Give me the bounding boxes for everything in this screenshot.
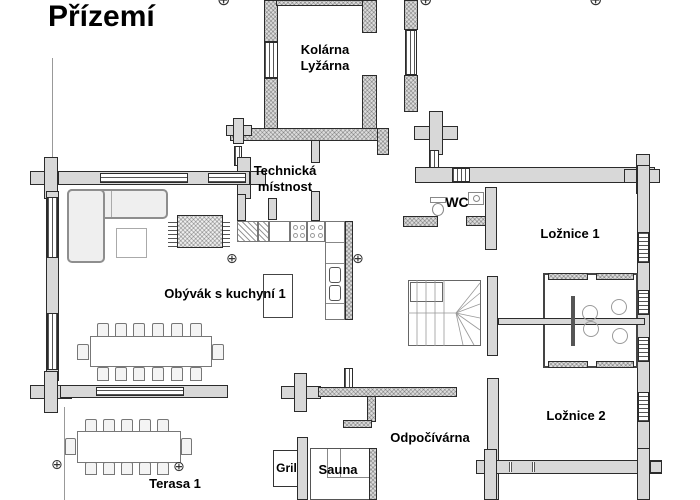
wall-segment: [369, 448, 377, 500]
wall-segment: [487, 276, 498, 356]
room-label-gril: Gril: [273, 461, 300, 476]
window: [96, 387, 184, 396]
window: [264, 42, 278, 78]
fridge: [329, 267, 341, 283]
wall-segment: [230, 128, 388, 141]
room-label-obyvak: Obývák s kuchyní 1: [150, 286, 300, 302]
burner-icon: [318, 225, 323, 230]
burner-icon: [293, 233, 298, 238]
divider: [326, 263, 344, 264]
divider: [326, 242, 344, 243]
chair: [139, 419, 151, 432]
chair: [157, 462, 169, 475]
wall-segment: [403, 216, 438, 227]
chair: [103, 462, 115, 475]
burner-icon: [293, 225, 298, 230]
chair: [115, 323, 127, 337]
burner-icon: [300, 233, 305, 238]
kitchen-tall-unit: [325, 221, 345, 320]
survey-marker: ⊕: [217, 0, 230, 8]
window: [429, 150, 439, 168]
log-joint: [233, 118, 244, 144]
burner-icon: [310, 225, 315, 230]
sofa: [67, 189, 105, 263]
wall-segment: [476, 460, 662, 474]
floor-plan: Přízemí ⊕ ⊕ ⊕ Kolárna Lyžárna Technická …: [0, 0, 700, 500]
wall-segment: [343, 420, 372, 428]
wall-segment: [268, 198, 277, 220]
window: [208, 173, 246, 183]
wall-segment: [548, 361, 588, 368]
chair: [85, 419, 97, 432]
room-label-sauna: Sauna: [312, 462, 364, 478]
window: [47, 197, 58, 258]
room-label-kolarna: Kolárna Lyžárna: [292, 42, 358, 75]
chair: [212, 344, 224, 360]
wall-segment: [345, 221, 353, 320]
wardrobe-circle: [611, 299, 627, 315]
wall-segment: [311, 140, 320, 163]
log-joint: [484, 449, 497, 500]
sofa-cushion-line: [111, 191, 112, 217]
wall-segment: [362, 0, 377, 33]
chair: [181, 438, 192, 455]
wall-segment: [318, 387, 457, 397]
wall-segment: [404, 0, 418, 30]
construction-line: [52, 58, 53, 157]
chair: [190, 367, 202, 381]
chair: [157, 419, 169, 432]
wardrobe-circle: [583, 321, 599, 337]
wall-segment: [596, 361, 634, 368]
survey-marker: ⊕: [352, 252, 364, 266]
survey-marker: ⊕: [419, 0, 432, 8]
staircase: [408, 280, 481, 346]
chair: [133, 323, 145, 337]
door-opening: [532, 462, 535, 472]
window: [638, 232, 649, 263]
wall-segment: [415, 167, 655, 183]
window: [100, 173, 188, 183]
room-label-technicka: Technická místnost: [245, 163, 325, 196]
chair: [171, 367, 183, 381]
room-label-loznice2: Ložnice 2: [526, 408, 626, 424]
oven: [329, 285, 341, 301]
kitchen-counter-unit: [258, 221, 269, 242]
chair: [103, 419, 115, 432]
wall-segment: [311, 191, 320, 221]
survey-marker: ⊕: [589, 0, 602, 8]
chair: [77, 344, 89, 360]
burner-icon: [318, 233, 323, 238]
divider: [326, 303, 344, 304]
chair: [139, 462, 151, 475]
coffee-table: [116, 228, 147, 258]
chair: [85, 462, 97, 475]
kitchen-counter-unit: [237, 221, 258, 242]
chair: [152, 323, 164, 337]
cooktop-unit: [290, 221, 307, 242]
page-title: Přízemí: [48, 0, 155, 34]
wall-segment: [377, 128, 389, 155]
chair: [97, 367, 109, 381]
survey-marker: ⊕: [173, 460, 185, 474]
fireplace: [177, 215, 223, 248]
sink: [468, 192, 484, 205]
room-label-loznice1: Ložnice 1: [520, 226, 620, 242]
sink-unit: [269, 221, 290, 242]
chair: [65, 438, 76, 455]
wardrobe-circle: [582, 305, 598, 321]
dining-table: [90, 336, 212, 367]
survey-marker: ⊕: [226, 252, 238, 266]
wall-segment: [485, 187, 497, 250]
dining-table: [77, 431, 181, 463]
log-joint: [429, 111, 443, 155]
chair: [121, 419, 133, 432]
window: [47, 313, 58, 370]
wall-segment: [367, 396, 376, 422]
chair: [133, 367, 145, 381]
window: [405, 30, 417, 75]
chair: [97, 323, 109, 337]
burner-icon: [300, 225, 305, 230]
log-joint: [44, 371, 58, 413]
wall-segment: [596, 273, 634, 280]
room-label-terasa: Terasa 1: [135, 476, 215, 492]
window: [638, 392, 649, 422]
window: [638, 290, 649, 315]
wardrobe-circle: [612, 328, 628, 344]
log-joint: [294, 373, 307, 412]
chair: [171, 323, 183, 337]
log-joint: [650, 461, 662, 473]
wall-segment: [237, 194, 246, 221]
wall-segment: [548, 273, 588, 280]
wall-segment: [264, 0, 278, 42]
door-opening: [452, 168, 470, 182]
survey-marker: ⊕: [51, 458, 63, 472]
wall-segment: [297, 437, 308, 500]
closet-divider: [571, 296, 575, 346]
chair: [115, 367, 127, 381]
toilet: [430, 197, 446, 216]
log-joint: [637, 448, 650, 500]
window: [638, 337, 649, 362]
door-opening: [509, 462, 512, 472]
chair: [190, 323, 202, 337]
cooktop-unit: [307, 221, 325, 242]
window: [344, 368, 353, 388]
burner-icon: [310, 233, 315, 238]
wall-segment: [276, 0, 368, 6]
room-label-odpocivarna: Odpočívárna: [380, 430, 480, 446]
chair: [121, 462, 133, 475]
chair: [152, 367, 164, 381]
wall-segment: [404, 75, 418, 112]
wall-segment: [362, 75, 377, 130]
wall-segment: [264, 78, 278, 130]
